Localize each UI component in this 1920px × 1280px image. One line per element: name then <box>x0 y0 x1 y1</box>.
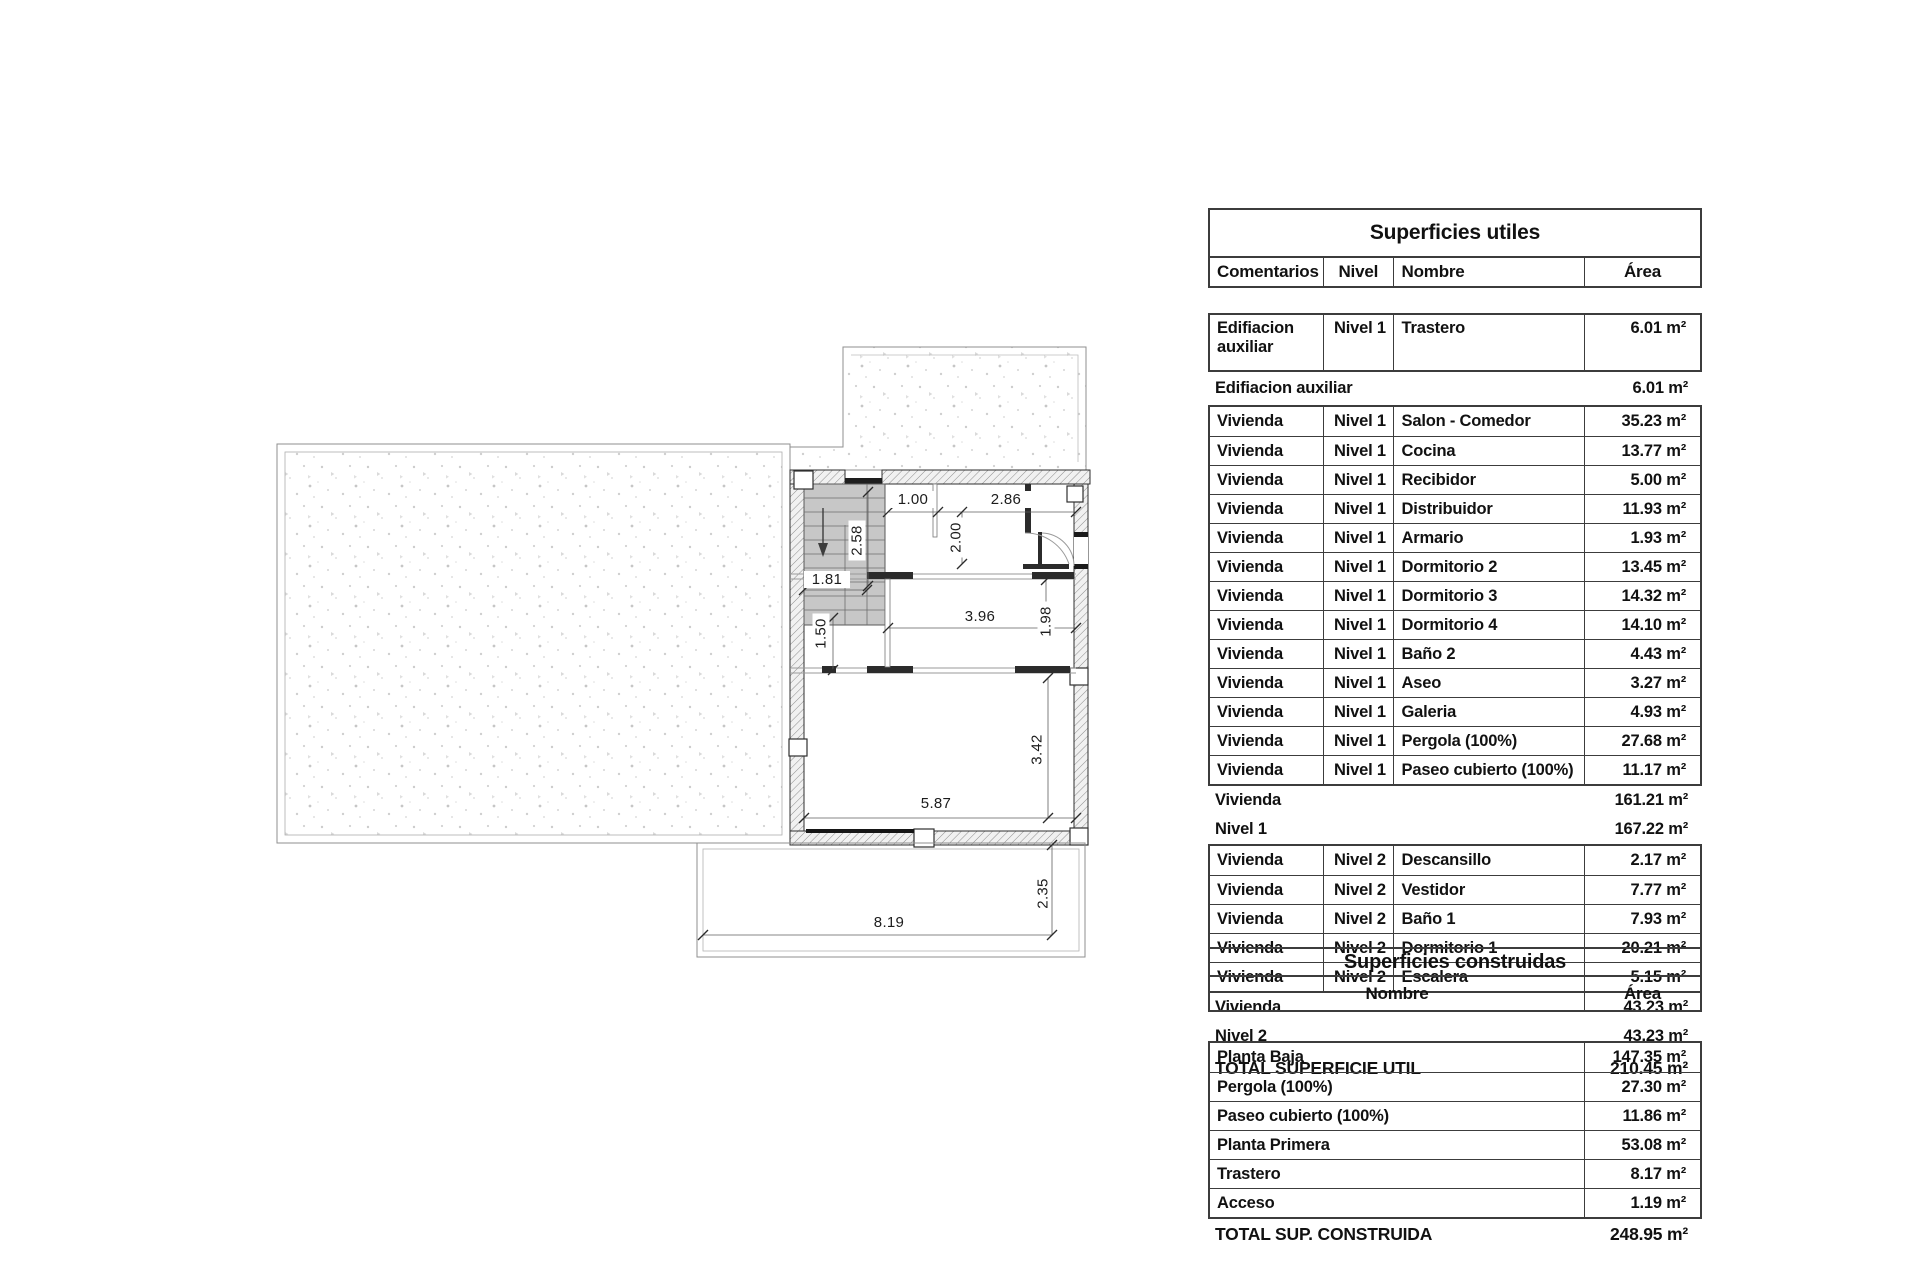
table-row: Trastero 8.17 m² <box>1210 1159 1700 1188</box>
patio <box>697 843 1085 957</box>
header-area: Área <box>1584 258 1700 286</box>
header-nombre: Nombre <box>1393 258 1584 286</box>
staircase <box>804 484 885 625</box>
table-row: Vivienda Nivel 1 Distribuidor 11.93 m² <box>1210 494 1700 523</box>
table-row: Pergola (100%) 27.30 m² <box>1210 1072 1700 1101</box>
header-nombre: Nombre <box>1210 977 1584 1010</box>
table-row: Vivienda Nivel 1 Paseo cubierto (100%) 1… <box>1210 755 1700 784</box>
table-title: Superficies construidas <box>1208 947 1702 977</box>
dimension-label: 2.86 <box>978 491 1034 508</box>
table-row: Vivienda Nivel 2 Descansillo 2.17 m² <box>1210 846 1700 875</box>
table-header-row: Nombre Área <box>1208 977 1702 1012</box>
table-title: Superficies utiles <box>1208 208 1702 258</box>
table-header-row: Comentarios Nivel Nombre Área <box>1208 258 1702 288</box>
table-row: Vivienda Nivel 1 Dormitorio 4 14.10 m² <box>1210 610 1700 639</box>
construidas-rows: Planta Baja 147.35 m² Pergola (100%) 27.… <box>1208 1041 1702 1219</box>
group-summary: Nivel 1 167.22 m² <box>1208 815 1702 844</box>
dimension-label: 1.50 <box>813 614 830 654</box>
dimension-label: 3.96 <box>957 608 1003 625</box>
entry-threshold <box>845 478 882 484</box>
group-summary: Edifiacion auxiliar 6.01 m² <box>1208 372 1702 405</box>
dimension-label: 2.00 <box>948 518 965 558</box>
terrace-left <box>277 444 790 843</box>
dimension-label: 2.58 <box>849 521 866 561</box>
dimension-label: 1.98 <box>1038 602 1055 642</box>
table-row: Vivienda Nivel 1 Aseo 3.27 m² <box>1210 668 1700 697</box>
dimension-label: 3.42 <box>1029 730 1046 770</box>
table-row: Edifiacion auxiliar Nivel 1 Trastero 6.0… <box>1210 315 1700 370</box>
table-row: Vivienda Nivel 1 Cocina 13.77 m² <box>1210 436 1700 465</box>
table-row: Vivienda Nivel 1 Armario 1.93 m² <box>1210 523 1700 552</box>
dimension-label: 5.87 <box>913 795 959 812</box>
floor-plan-linework <box>270 340 1100 960</box>
group-edificacion-auxiliar: Edifiacion auxiliar Nivel 1 Trastero 6.0… <box>1208 313 1702 372</box>
dimension-label: 1.00 <box>890 491 936 508</box>
total-sup-construida: TOTAL SUP. CONSTRUIDA 248.95 m² <box>1208 1219 1702 1249</box>
table-row: Vivienda Nivel 1 Pergola (100%) 27.68 m² <box>1210 726 1700 755</box>
dimension-label: 8.19 <box>866 914 912 931</box>
table-row: Vivienda Nivel 1 Dormitorio 2 13.45 m² <box>1210 552 1700 581</box>
table-row: Paseo cubierto (100%) 11.86 m² <box>1210 1101 1700 1130</box>
table-row: Planta Baja 147.35 m² <box>1210 1043 1700 1072</box>
table-row: Planta Primera 53.08 m² <box>1210 1130 1700 1159</box>
table-superficies-construidas: Superficies construidas Nombre Área Plan… <box>1208 947 1702 1249</box>
floor-plan: 1.00 2.86 2.00 2.58 1.81 1.50 3.96 1.98 … <box>270 340 1100 960</box>
table-row: Vivienda Nivel 1 Salon - Comedor 35.23 m… <box>1210 407 1700 436</box>
group-summary: Vivienda 161.21 m² <box>1208 786 1702 815</box>
table-row: Vivienda Nivel 1 Recibidor 5.00 m² <box>1210 465 1700 494</box>
table-row: Vivienda Nivel 1 Baño 2 4.43 m² <box>1210 639 1700 668</box>
header-nivel: Nivel <box>1323 258 1392 286</box>
group-vivienda-nivel1: Vivienda Nivel 1 Salon - Comedor 35.23 m… <box>1208 405 1702 786</box>
table-row: Vivienda Nivel 1 Galeria 4.93 m² <box>1210 697 1700 726</box>
dimension-label: 1.81 <box>804 571 850 588</box>
table-row: Acceso 1.19 m² <box>1210 1188 1700 1217</box>
header-comentarios: Comentarios <box>1210 258 1323 286</box>
header-area: Área <box>1584 977 1700 1010</box>
table-row: Vivienda Nivel 2 Vestidor 7.77 m² <box>1210 875 1700 904</box>
terrace-top-right <box>790 347 1086 470</box>
dimension-label: 2.35 <box>1035 874 1052 914</box>
table-row: Vivienda Nivel 1 Dormitorio 3 14.32 m² <box>1210 581 1700 610</box>
table-row: Vivienda Nivel 2 Baño 1 7.93 m² <box>1210 904 1700 933</box>
